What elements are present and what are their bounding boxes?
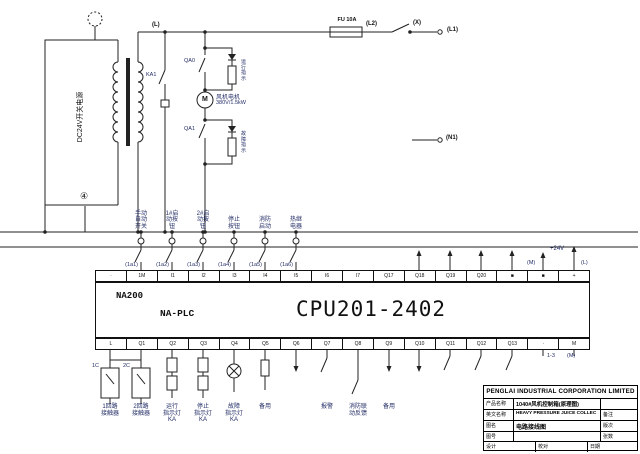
number-label: 图号: [484, 432, 514, 441]
plc-terminal: L: [96, 339, 127, 349]
note-cell: 备注: [601, 410, 637, 420]
coil-a-label: 1C: [92, 363, 99, 369]
plc-terminal: Q13: [497, 339, 528, 349]
plc-bottom-terminal-strip: L Q1 Q2 Q3 Q4 Q5 Q6 Q7 Q8 Q9 Q10 Q11 Q12…: [95, 338, 590, 350]
plc-terminal: Q1: [127, 339, 158, 349]
plc-terminal: Q9: [374, 339, 405, 349]
output-label-5: 故障 指示灯 KA: [220, 404, 248, 424]
date-label: 日期: [588, 442, 637, 452]
plc-terminal: ■: [528, 271, 559, 281]
input-label-4: 停止 按钮: [222, 192, 246, 230]
input-label-1: 手动 自动 开关: [129, 192, 153, 230]
motor-m-symbol: M: [202, 96, 208, 103]
english-label: 英文名称: [484, 410, 514, 420]
power-supply-label: DC24V开关电源: [75, 67, 85, 167]
run-lamp-label: 运行指示: [240, 60, 247, 82]
product-extra: [601, 399, 637, 409]
plc-terminal: 1M: [127, 271, 158, 281]
plc-terminal: Q20: [467, 271, 498, 281]
plc-terminal: I2: [189, 271, 220, 281]
wire-13-label: 1-3: [547, 353, 555, 359]
coil-b-label: 2C: [123, 363, 130, 369]
plc-terminal: I7: [343, 271, 374, 281]
plc-terminal: Q17: [374, 271, 405, 281]
plc-brand: NA200: [116, 291, 143, 301]
drawing-label: 图名: [484, 421, 514, 431]
node-4-marker: ④: [80, 193, 88, 200]
node-n1-label: (N1): [446, 135, 458, 142]
input-label-5: 消防 启动: [253, 192, 277, 230]
input-label-3: 2#启 动按 钮: [191, 192, 215, 230]
plc-terminal: ■: [497, 271, 528, 281]
motor-contact-top-label: QA0: [184, 58, 195, 64]
plc-terminal: I6: [312, 271, 343, 281]
plc-top-terminal-strip: · 1M I1 I2 I3 I4 I5 I6 I7 Q17 Q18 Q19 Q2…: [95, 270, 590, 282]
output-label-2: 2回路 接触器: [127, 404, 155, 417]
plc-terminal: Q5: [250, 339, 281, 349]
node-l2-label: (L2): [366, 21, 377, 28]
output-label-3: 运行 指示灯 KA: [158, 404, 186, 424]
input-label-6: 热继 电器: [284, 192, 308, 230]
fault-lamp-label: 故障指示: [240, 132, 247, 154]
plc-terminal: Q11: [436, 339, 467, 349]
plc-terminal: Q3: [189, 339, 220, 349]
wire-label-1a2: (1a2): [145, 262, 169, 268]
wire-m2-label: (M): [567, 353, 575, 359]
wire-m-label: (M): [527, 260, 535, 266]
wire-l-label: (L): [581, 260, 588, 266]
plc-terminal: +: [559, 271, 589, 281]
plc-terminal: M: [559, 339, 589, 349]
output-label-9: 备用: [375, 404, 403, 411]
output-label-8: 消防联 动反馈: [344, 404, 372, 417]
plus-24v-label: +24V: [550, 246, 564, 252]
switch-blade-icon: [392, 24, 409, 32]
wire-label-1a4: (1a4): [207, 262, 231, 268]
relay-contact-label: KA1: [146, 72, 156, 78]
input-label-2: 1#启 动按 钮: [160, 192, 184, 230]
product-label: 产品名称: [484, 399, 514, 409]
wire-label-1a6: (1a6): [269, 262, 293, 268]
plc-terminal: Q6: [281, 339, 312, 349]
motor-contact-bottom-label: QA1: [184, 126, 195, 132]
wire-label-1a1: (1a1): [114, 262, 138, 268]
plc-series: NA-PLC: [160, 308, 194, 319]
checker-label: 校对: [536, 442, 588, 452]
company-name: PENGLAI INDUSTRIAL CORPORATION LIMITED: [484, 386, 637, 398]
plc-terminal: I3: [220, 271, 251, 281]
top-rail: [138, 24, 442, 142]
number-value: [514, 432, 601, 441]
title-block: PENGLAI INDUSTRIAL CORPORATION LIMITED 产…: [483, 385, 638, 451]
schematic-page: DC24V开关电源 (L) FU 10A (L2) (X) (L1) (N1) …: [0, 0, 640, 454]
bus-lines: [0, 206, 638, 247]
output-label-1: 1回路 接触器: [96, 404, 124, 417]
product-value: 1040#风机控制箱(原理图): [514, 399, 601, 409]
plc-terminal: I5: [281, 271, 312, 281]
plc-terminal: ·: [528, 339, 559, 349]
plc-terminal: Q18: [405, 271, 436, 281]
plc-terminal: Q12: [467, 339, 498, 349]
node-l1-label: (L1): [447, 27, 458, 34]
output-label-7: 报警: [313, 404, 341, 411]
plc-terminal: ·: [96, 271, 127, 281]
plc-terminal: I4: [250, 271, 281, 281]
plc-model: CPU201-2402: [296, 297, 446, 321]
plc-terminal: Q2: [158, 339, 189, 349]
wire-label-1a3: (1a3): [176, 262, 200, 268]
english-value: HEAVY PRESSURE JUICE COLLEC: [514, 410, 601, 420]
fuse-label: FU 10A: [330, 17, 364, 24]
plc-terminal: Q7: [312, 339, 343, 349]
sheets-label: 张数: [601, 432, 637, 441]
motor-rating-label: 380V/1.5kW: [216, 100, 246, 106]
plc-terminal: Q8: [343, 339, 374, 349]
plc-terminal: Q10: [405, 339, 436, 349]
designer-label: 设计: [484, 442, 536, 452]
node-l-label: (L): [152, 22, 160, 29]
output-label-4: 停止 指示灯 KA: [189, 404, 217, 424]
wire-label-1a5: (1a5): [238, 262, 262, 268]
revision-label: 版次: [601, 421, 637, 431]
plug-icon: [88, 12, 102, 26]
output-label-6: 备用: [251, 404, 279, 411]
plc-terminal: I1: [158, 271, 189, 281]
plc-terminal: Q19: [436, 271, 467, 281]
drawing-value: 电路接线图: [514, 421, 601, 431]
plc-body: NA200 NA-PLC CPU201-2402: [95, 282, 590, 338]
node-x-label: (X): [413, 20, 421, 27]
plc-terminal: Q4: [220, 339, 251, 349]
